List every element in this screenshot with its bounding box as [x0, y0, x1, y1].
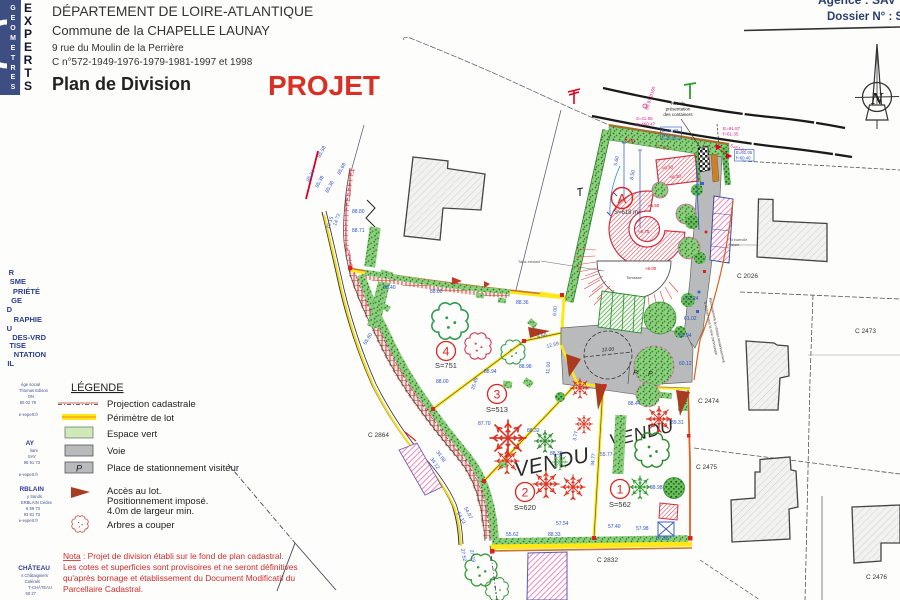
svg-text:57.40: 57.40	[608, 524, 621, 530]
svg-text:87.70: 87.70	[478, 421, 491, 427]
svg-text:E=61.87: E=61.87	[723, 126, 741, 131]
svg-text:X: X	[24, 14, 32, 28]
svg-text:T: T	[11, 55, 16, 62]
svg-text:Les cotes et superficies sont: Les cotes et superficies sont provisoire…	[63, 562, 298, 572]
svg-text:55.77: 55.77	[600, 452, 613, 458]
svg-text:60.12: 60.12	[679, 361, 692, 367]
svg-text:P: P	[648, 371, 653, 378]
svg-text:CHÂTEAU: CHÂTEAU	[18, 563, 50, 572]
svg-text:4: 4	[443, 345, 450, 359]
svg-text:C 2832: C 2832	[597, 557, 618, 564]
svg-text:Projection cadastrale: Projection cadastrale	[107, 399, 196, 410]
svg-text:TISE: TISE	[9, 341, 26, 350]
svg-text:60.94: 60.94	[679, 333, 692, 339]
svg-text:61.02: 61.02	[684, 316, 697, 322]
svg-text:E: E	[24, 1, 32, 15]
svg-text:C 2474: C 2474	[698, 398, 719, 405]
svg-text:57.54: 57.54	[556, 521, 569, 527]
svg-text:12.00: 12.00	[601, 346, 614, 353]
svg-text:88.32: 88.32	[527, 428, 540, 434]
svg-text:S=618 m²: S=618 m²	[614, 210, 640, 216]
svg-text:Dossier N° : S: Dossier N° : S	[827, 11, 900, 23]
svg-text:88.44: 88.44	[628, 401, 641, 407]
svg-text:Voie: Voie	[107, 446, 126, 457]
svg-text:89.31: 89.31	[671, 420, 684, 426]
svg-text:RBLAIN: RBLAIN	[19, 486, 44, 493]
svg-text:C 2473: C 2473	[855, 328, 876, 335]
svg-text:S=620: S=620	[514, 503, 536, 512]
svg-text:y Sands: y Sands	[27, 494, 42, 499]
svg-text:R: R	[24, 53, 33, 67]
svg-text:C 2026: C 2026	[737, 273, 758, 280]
svg-text:E: E	[11, 15, 16, 22]
svg-text:4.0m de largeur min.: 4.0m de largeur min.	[107, 506, 194, 517]
svg-text:11.00: 11.00	[545, 361, 552, 374]
svg-text:e-expert.fr: e-expert.fr	[19, 518, 39, 523]
svg-text:88.80: 88.80	[352, 209, 365, 215]
svg-text:E: E	[11, 45, 16, 52]
svg-text:qu'après bornage et établissem: qu'après bornage et établissement du Doc…	[63, 573, 295, 583]
svg-text:S: S	[24, 79, 32, 93]
svg-text:ège social: ège social	[21, 382, 40, 387]
svg-text:ERBLAIN Cédex: ERBLAIN Cédex	[21, 500, 53, 505]
svg-text:1: 1	[617, 483, 624, 497]
svg-text:≈5.50: ≈5.50	[648, 203, 660, 208]
svg-text:O: O	[10, 25, 16, 32]
svg-text:f=60.40: f=60.40	[736, 156, 751, 161]
svg-text:57.98: 57.98	[636, 526, 649, 532]
svg-text:88.94: 88.94	[484, 369, 497, 375]
svg-text:Périmètre de lot: Périmètre de lot	[107, 413, 174, 424]
svg-text:C n°572-1949-1976-1979-1981-19: C n°572-1949-1976-1979-1981-1997 et 1998	[52, 57, 253, 68]
svg-text:Parcellaire Cadastral.: Parcellaire Cadastral.	[63, 584, 143, 594]
svg-text:R: R	[9, 268, 15, 277]
svg-text:M: M	[10, 35, 16, 42]
svg-text:DÉPARTEMENT DE LOIRE-ATLANTIQU: DÉPARTEMENT DE LOIRE-ATLANTIQUE	[52, 3, 313, 19]
svg-text:P: P	[633, 370, 638, 377]
svg-text:S=751: S=751	[435, 361, 457, 370]
svg-text:D: D	[7, 305, 13, 314]
svg-text:p=460.47: p=460.47	[636, 122, 656, 127]
svg-text:2: 2	[522, 486, 529, 500]
svg-text:f=61.15: f=61.15	[662, 134, 677, 139]
svg-text:s Châtaigniers: s Châtaigniers	[21, 573, 48, 578]
svg-text:Thomas Edison: Thomas Edison	[19, 388, 49, 393]
svg-text:E=61.05: E=61.05	[736, 150, 753, 155]
svg-text:Commune de la CHAPELLE LAUNAY: Commune de la CHAPELLE LAUNAY	[52, 23, 270, 38]
svg-text:Agence : SAV: Agence : SAV	[818, 0, 896, 7]
svg-text:88.00: 88.00	[430, 289, 443, 295]
svg-text:3=41.55: 3=41.55	[636, 116, 653, 121]
svg-text:≈8.00: ≈8.00	[645, 266, 657, 271]
svg-text:liare: liare	[30, 448, 39, 453]
svg-text:C 2864: C 2864	[368, 432, 389, 439]
svg-text:57.98: 57.98	[656, 536, 669, 542]
svg-text:SME: SME	[10, 277, 26, 286]
svg-text:e-expert.fr: e-expert.fr	[19, 412, 39, 417]
svg-text:3: 3	[494, 388, 501, 402]
svg-text:E: E	[11, 74, 16, 81]
svg-text:RAPHIE: RAPHIE	[14, 315, 42, 324]
svg-text:G: G	[10, 5, 16, 12]
svg-text:C 2476: C 2476	[866, 574, 887, 581]
svg-text:9 rue du Moulin de la Perrière: 9 rue du Moulin de la Perrière	[52, 43, 184, 54]
svg-text:88.00: 88.00	[436, 379, 449, 385]
svg-text:88.36: 88.36	[516, 300, 529, 306]
svg-text:des containers: des containers	[663, 112, 693, 117]
svg-text:IL: IL	[7, 359, 14, 368]
svg-text:P: P	[24, 27, 32, 41]
svg-text:61.24: 61.24	[686, 296, 699, 302]
svg-text:présentation: présentation	[666, 107, 691, 112]
svg-text:≈6.70: ≈6.70	[638, 229, 650, 234]
svg-text:ON: ON	[28, 394, 34, 399]
svg-text:C 2475: C 2475	[696, 464, 717, 471]
svg-text:S=513: S=513	[486, 405, 508, 414]
svg-text:Espace vert: Espace vert	[107, 429, 158, 440]
svg-text:Terrasse: Terrasse	[626, 275, 642, 280]
svg-text:GE: GE	[11, 296, 22, 305]
svg-text:LÉGENDE: LÉGENDE	[71, 381, 124, 394]
svg-text:e-expert.fr: e-expert.fr	[19, 472, 39, 477]
svg-text:T: T	[24, 66, 32, 80]
svg-text:T-CHÂTEAU: T-CHÂTEAU	[28, 585, 52, 590]
svg-text:AY: AY	[26, 440, 35, 447]
svg-text:Nota : Projet de division étab: Nota : Projet de division établi sur le …	[63, 551, 284, 561]
svg-text:Plan de Division: Plan de Division	[52, 74, 191, 94]
svg-text:50 02 79: 50 02 79	[20, 400, 37, 405]
svg-text:88.71: 88.71	[352, 228, 365, 234]
svg-text:Talus existant: Talus existant	[518, 260, 540, 264]
svg-text:88.98: 88.98	[650, 485, 663, 491]
svg-text:Place de stationnement visiteu: Place de stationnement visiteur	[107, 463, 239, 474]
svg-text:PRIÉTÉ: PRIÉTÉ	[13, 287, 40, 296]
svg-text:S=562: S=562	[609, 500, 631, 509]
svg-text:N: N	[870, 89, 884, 108]
svg-text:NTATION: NTATION	[14, 350, 46, 359]
svg-text:55.62: 55.62	[506, 532, 519, 538]
svg-text:SAY: SAY	[28, 454, 36, 459]
svg-text:R: R	[10, 65, 15, 72]
svg-text:S: S	[11, 84, 16, 91]
svg-text:Calérals: Calérals	[25, 579, 40, 584]
svg-text:E: E	[24, 40, 32, 54]
svg-text:93 81 73: 93 81 73	[24, 512, 41, 517]
svg-text:88.38: 88.38	[550, 451, 563, 457]
svg-text:f=61.35: f=61.35	[723, 132, 739, 137]
svg-text:6.00: 6.00	[552, 306, 559, 316]
svg-text:95 91 73: 95 91 73	[24, 460, 41, 465]
svg-text:Arbres a couper: Arbres a couper	[107, 520, 175, 531]
svg-text:88.33: 88.33	[548, 532, 561, 538]
svg-text:P: P	[76, 464, 82, 474]
svg-text:PROJET: PROJET	[268, 70, 380, 101]
svg-text:E=61.73: E=61.73	[662, 128, 679, 133]
svg-text:U: U	[7, 324, 12, 333]
svg-text:6 59 73: 6 59 73	[26, 506, 41, 511]
svg-text:Aire de: Aire de	[671, 101, 686, 106]
svg-text:A: A	[618, 191, 627, 206]
svg-text:50 27: 50 27	[26, 591, 37, 596]
svg-text:88.40: 88.40	[383, 285, 396, 291]
svg-text:88.98: 88.98	[519, 364, 532, 370]
